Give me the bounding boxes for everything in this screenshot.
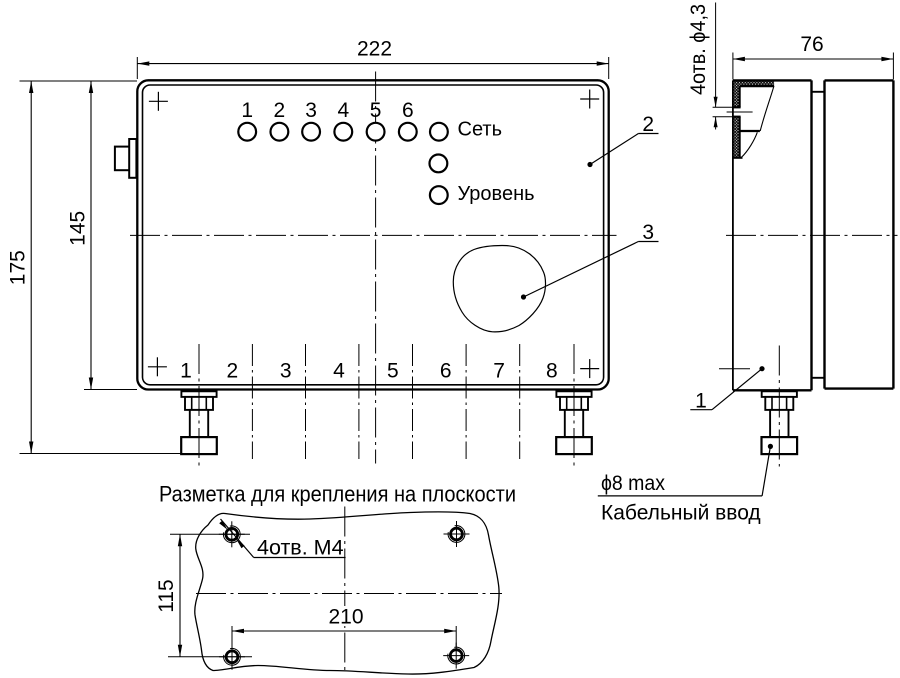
svg-text:2: 2 [642,113,654,136]
svg-text:Уровень: Уровень [458,183,535,205]
svg-text:3: 3 [280,360,292,383]
svg-text:3: 3 [305,99,317,122]
svg-text:5: 5 [387,360,399,383]
svg-text:210: 210 [328,606,363,629]
svg-text:ϕ8 max: ϕ8 max [601,472,665,495]
svg-text:4: 4 [333,360,345,383]
svg-text:Сеть: Сеть [458,118,502,140]
svg-text:6: 6 [402,99,414,122]
svg-text:3: 3 [642,221,654,244]
svg-text:2: 2 [274,99,286,122]
svg-text:175: 175 [7,250,30,285]
svg-text:145: 145 [66,211,89,246]
svg-text:7: 7 [493,360,505,383]
svg-text:115: 115 [155,579,178,612]
svg-text:Кабельный ввод: Кабельный ввод [601,502,761,525]
svg-text:1: 1 [180,360,192,383]
svg-text:Разметка для крепления на плос: Разметка для крепления на плоскости [159,482,516,507]
svg-text:2: 2 [226,360,238,383]
svg-text:4отв. М4: 4отв. М4 [257,536,344,560]
svg-text:4: 4 [337,99,349,122]
svg-text:8: 8 [546,360,558,383]
svg-text:6: 6 [440,360,452,383]
svg-text:4отв. ϕ4,3: 4отв. ϕ4,3 [687,4,710,95]
svg-text:1: 1 [695,390,707,413]
svg-text:76: 76 [800,33,823,56]
svg-text:1: 1 [241,99,253,122]
svg-text:222: 222 [357,38,392,61]
svg-text:5: 5 [370,99,382,122]
